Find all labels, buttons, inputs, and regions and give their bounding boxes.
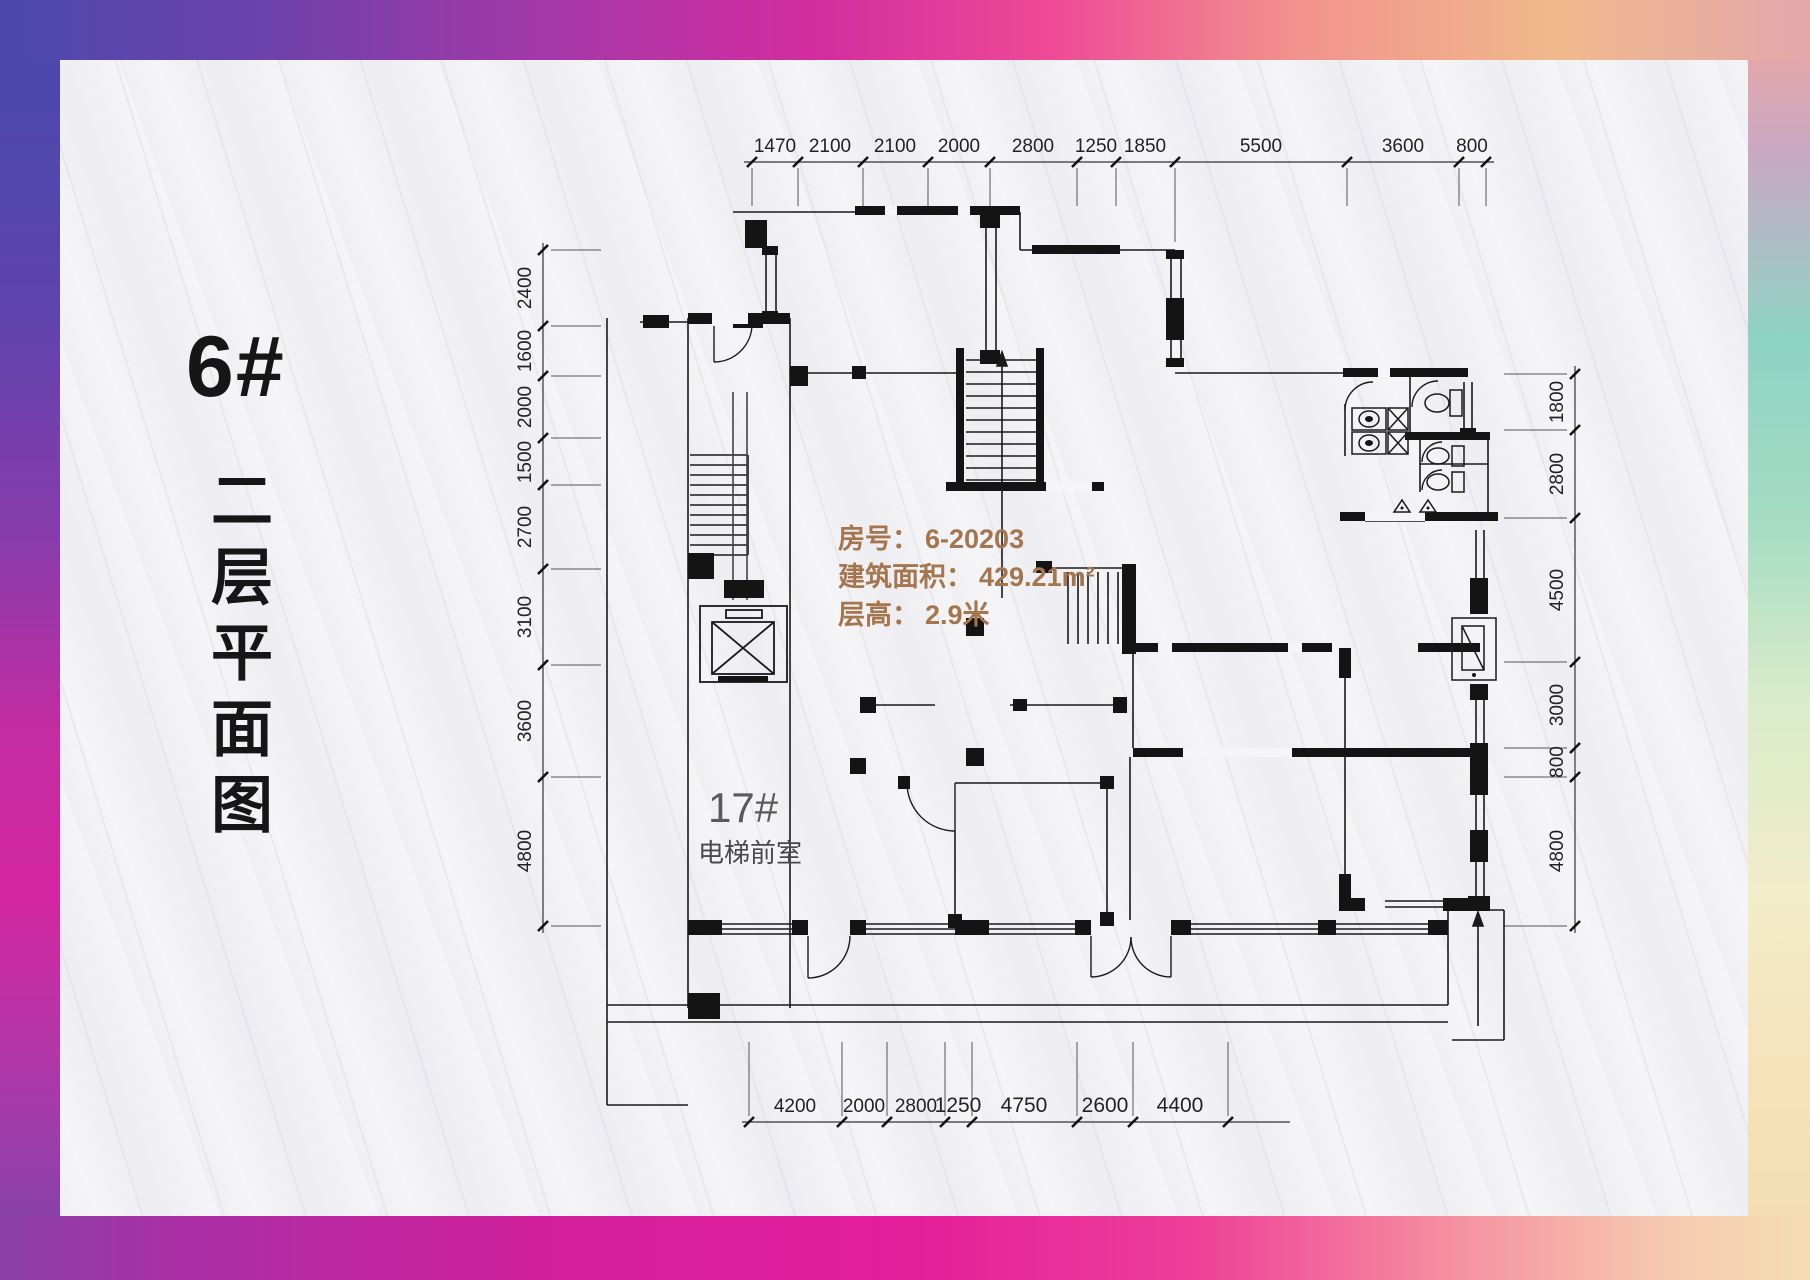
svg-text:2700: 2700 xyxy=(515,506,536,548)
dimension-chain-right xyxy=(1504,366,1580,933)
svg-text:2000: 2000 xyxy=(843,1096,885,1117)
svg-text:3100: 3100 xyxy=(515,596,536,638)
elevator-lobby-label: 电梯前室 xyxy=(698,838,802,868)
svg-text:2800: 2800 xyxy=(1547,453,1568,495)
svg-text:800: 800 xyxy=(1547,746,1568,778)
dimension-labels-left: 2400 1600 2000 1500 2700 3100 3600 4800 xyxy=(515,267,536,872)
svg-text:2000: 2000 xyxy=(515,386,536,428)
unit-annotation: 房号：6-20203 建筑面积：429.21m² 层高：2.9米 xyxy=(838,524,1095,630)
svg-text:2600: 2600 xyxy=(1082,1094,1129,1117)
svg-text:2400: 2400 xyxy=(515,267,536,309)
area-line: 建筑面积：429.21m² xyxy=(838,561,1095,592)
svg-text:4800: 4800 xyxy=(515,830,536,872)
svg-text:4500: 4500 xyxy=(1547,569,1568,611)
room-number-line: 房号：6-20203 xyxy=(838,524,1024,554)
svg-text:2800: 2800 xyxy=(895,1096,937,1117)
wall-gaps xyxy=(712,206,1425,757)
elevator-number-label: 17# xyxy=(708,784,779,831)
svg-text:1250: 1250 xyxy=(935,1094,982,1117)
dimension-chain-top xyxy=(744,157,1494,242)
svg-text:4750: 4750 xyxy=(1001,1094,1048,1117)
dimension-labels-bottom: 4200 2000 2800 1250 4750 2600 4400 xyxy=(774,1094,1204,1117)
svg-text:5500: 5500 xyxy=(1240,136,1282,157)
dimension-labels-top: 1470 2100 2100 2000 2800 1250 1850 5500 … xyxy=(754,136,1488,157)
svg-text:3600: 3600 xyxy=(1382,136,1424,157)
svg-text:2800: 2800 xyxy=(1012,136,1054,157)
floor-height-line: 层高：2.9米 xyxy=(838,599,990,630)
svg-text:2100: 2100 xyxy=(874,136,916,157)
svg-text:4200: 4200 xyxy=(774,1096,816,1117)
elevator-shaft xyxy=(700,606,787,682)
floorplan-page: { "page": { "background": "#f5f5f7" }, "… xyxy=(0,0,1810,1280)
stair-direction-arrows xyxy=(997,352,1483,1026)
svg-text:3000: 3000 xyxy=(1547,684,1568,726)
door-arcs xyxy=(714,324,1442,978)
svg-text:1500: 1500 xyxy=(515,441,536,483)
dimension-labels-right: 1800 2800 4500 3000 800 4800 xyxy=(1547,381,1568,872)
dimension-chain-left xyxy=(538,243,601,933)
svg-text:1250: 1250 xyxy=(1075,136,1117,157)
plan-thick-walls xyxy=(643,206,1498,1019)
svg-text:1850: 1850 xyxy=(1124,136,1166,157)
svg-text:1470: 1470 xyxy=(754,136,796,157)
svg-text:4800: 4800 xyxy=(1547,830,1568,872)
svg-text:2100: 2100 xyxy=(809,136,851,157)
svg-text:800: 800 xyxy=(1456,136,1488,157)
svg-text:4400: 4400 xyxy=(1157,1094,1204,1117)
floor-plan-drawing: 1470 2100 2100 2000 2800 1250 1850 5500 … xyxy=(0,0,1810,1280)
svg-text:1600: 1600 xyxy=(515,330,536,372)
svg-text:1800: 1800 xyxy=(1547,381,1568,423)
svg-text:3600: 3600 xyxy=(515,700,536,742)
svg-text:2000: 2000 xyxy=(938,136,980,157)
plan-thin-walls xyxy=(607,212,1504,1105)
